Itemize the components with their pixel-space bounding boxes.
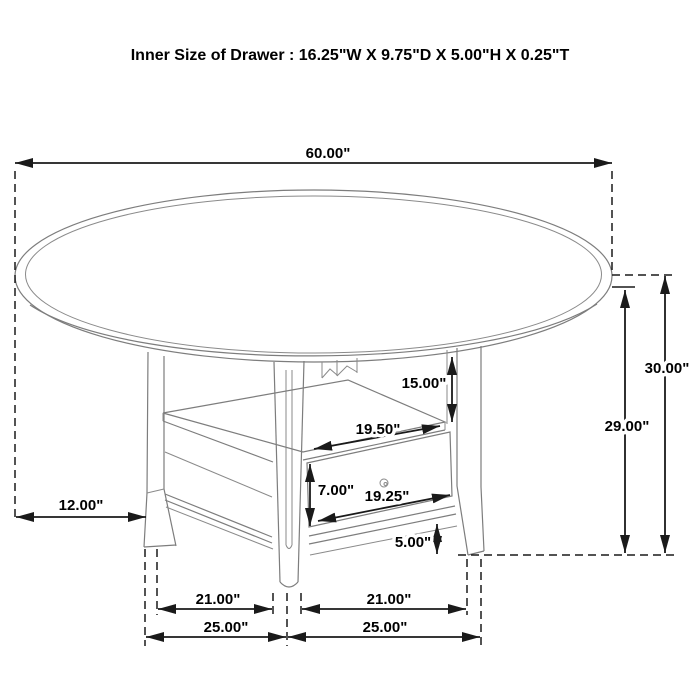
dim-label-drawer-width: 19.25" (365, 488, 410, 505)
dim-overall-height: 30.00" (645, 276, 690, 553)
dim-rail-height: 5.00" (395, 524, 437, 554)
dim-label-drawer-height: 7.00" (318, 482, 354, 499)
dim-label-shelf-width: 19.50" (356, 421, 401, 438)
dim-label-tabletop-to-shelf: 15.00" (402, 375, 447, 392)
dim-base-width-left: 25.00" (146, 619, 286, 637)
pedestal-front-leg (274, 361, 304, 587)
dim-label-rail-height: 5.00" (395, 534, 431, 551)
dim-label-leg-span-right: 21.00" (367, 591, 412, 608)
dim-label-underside-height: 29.00" (605, 418, 650, 435)
dim-label-base-width-right: 25.00" (363, 619, 408, 636)
left-side-opening (165, 452, 273, 549)
dim-label-top-overhang: 12.00" (59, 497, 104, 514)
dim-underside-height: 29.00" (605, 290, 650, 553)
storage-shelf (163, 380, 445, 462)
dim-label-table-diameter: 60.00" (306, 145, 351, 162)
dim-drawer-height: 7.00" (310, 464, 354, 526)
dim-tabletop-to-shelf: 15.00" (402, 357, 452, 422)
dim-top-overhang: 12.00" (16, 497, 146, 517)
pedestal-left-leg (144, 352, 176, 547)
dim-label-base-width-left: 25.00" (204, 619, 249, 636)
table-top (15, 190, 612, 362)
table-drawing: 60.00" 30.00" 29.00" 15.00" 19.50" 7.00"… (0, 0, 700, 700)
dim-label-leg-span-left: 21.00" (196, 591, 241, 608)
bottom-rail (309, 506, 457, 555)
dim-label-overall-height: 30.00" (645, 360, 690, 377)
dim-table-diameter: 60.00" (15, 145, 612, 163)
dim-leg-span-left: 21.00" (158, 591, 272, 609)
dim-base-width-right: 25.00" (288, 619, 480, 637)
dimension-diagram: Inner Size of Drawer : 16.25"W X 9.75"D … (0, 0, 700, 700)
dim-leg-span-right: 21.00" (302, 591, 466, 609)
